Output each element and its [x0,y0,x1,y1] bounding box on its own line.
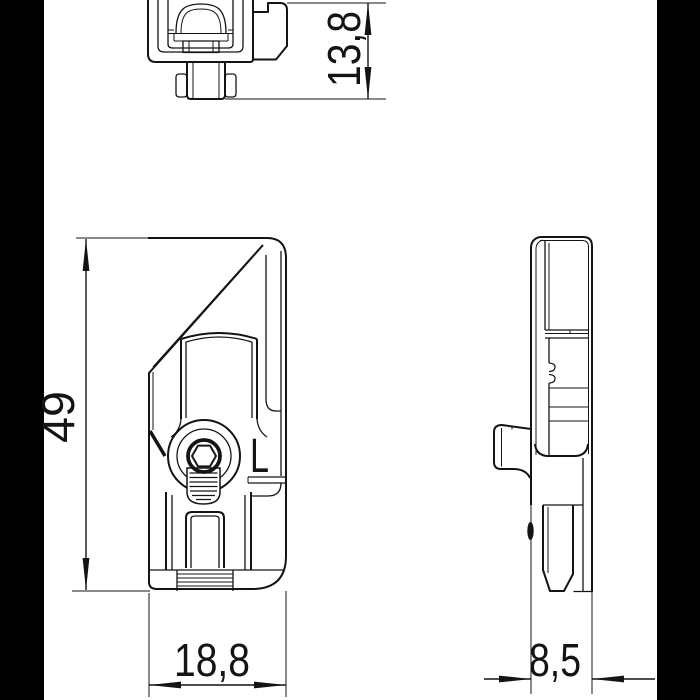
dimension-depth: 13,8 [225,3,386,99]
side-view-clip-bumps [549,363,555,383]
front-view-outline [148,238,286,589]
dimension-label-depth: 13,8 [318,11,370,87]
hex-socket [192,446,216,467]
front-view: L [148,238,286,591]
drawing-page: L 13,8 49 [0,0,700,700]
chamfer-edge-tick [150,431,165,456]
side-view-medium-details [543,240,592,592]
top-view [148,0,287,99]
dimension-label-side-width: 8,5 [529,634,581,686]
top-view-details [168,9,233,98]
arrowhead-down [83,558,90,590]
side-view [494,237,592,592]
dimension-width: 18,8 [149,591,286,697]
arrowhead-up [83,239,90,271]
dimension-height: 49 [32,238,150,591]
hatched-slot-hatch [190,473,218,500]
top-view-left-tab [176,74,187,97]
side-view-outline [494,237,592,592]
dimension-side-width: 8,5 [484,505,655,694]
part-marking-label: L [250,430,269,483]
arrowhead-left [592,676,624,683]
top-view-inner-frames [158,0,243,53]
dimension-label-width: 18,8 [174,634,250,686]
arrowhead-right [254,682,286,689]
technical-drawing: L 13,8 49 [0,0,700,700]
arrowhead-right [499,676,531,683]
dimension-label-height: 49 [32,391,84,443]
top-view-right-tab [225,74,236,97]
front-view-medium-details [150,249,286,591]
